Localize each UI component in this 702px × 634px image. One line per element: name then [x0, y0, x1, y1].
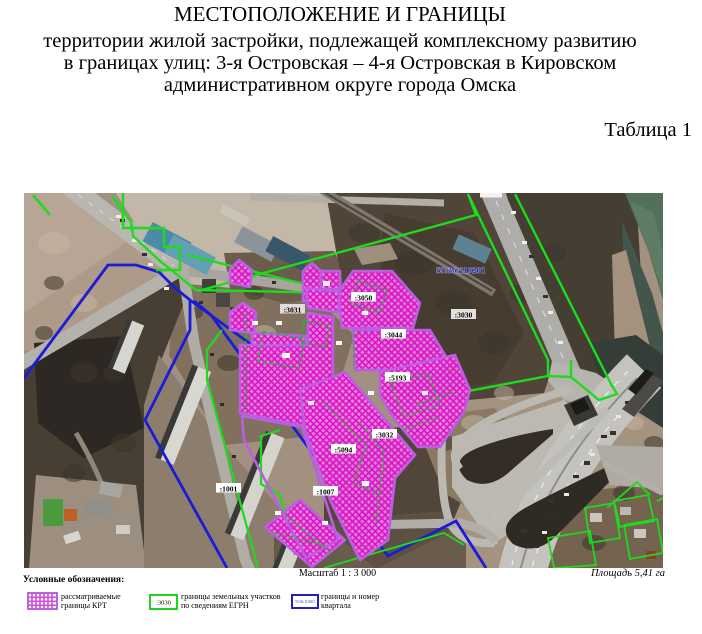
svg-text::1007: :1007 — [317, 488, 335, 497]
svg-text::3030: :3030 — [156, 600, 171, 607]
svg-text::3030: :3030 — [455, 311, 473, 320]
svg-text::1001: :1001 — [220, 485, 238, 494]
svg-text::3044: :3044 — [385, 331, 403, 340]
svg-text::5094: :5094 — [335, 446, 353, 455]
svg-text::3032: :3032 — [376, 431, 394, 440]
svg-text:55:36:110201: 55:36:110201 — [436, 265, 485, 275]
svg-text::5193: :5193 — [389, 374, 407, 383]
svg-text::3050: :3050 — [355, 294, 373, 303]
svg-text:55:36:110201: 55:36:110201 — [295, 600, 315, 604]
svg-text::3031: :3031 — [284, 306, 302, 315]
